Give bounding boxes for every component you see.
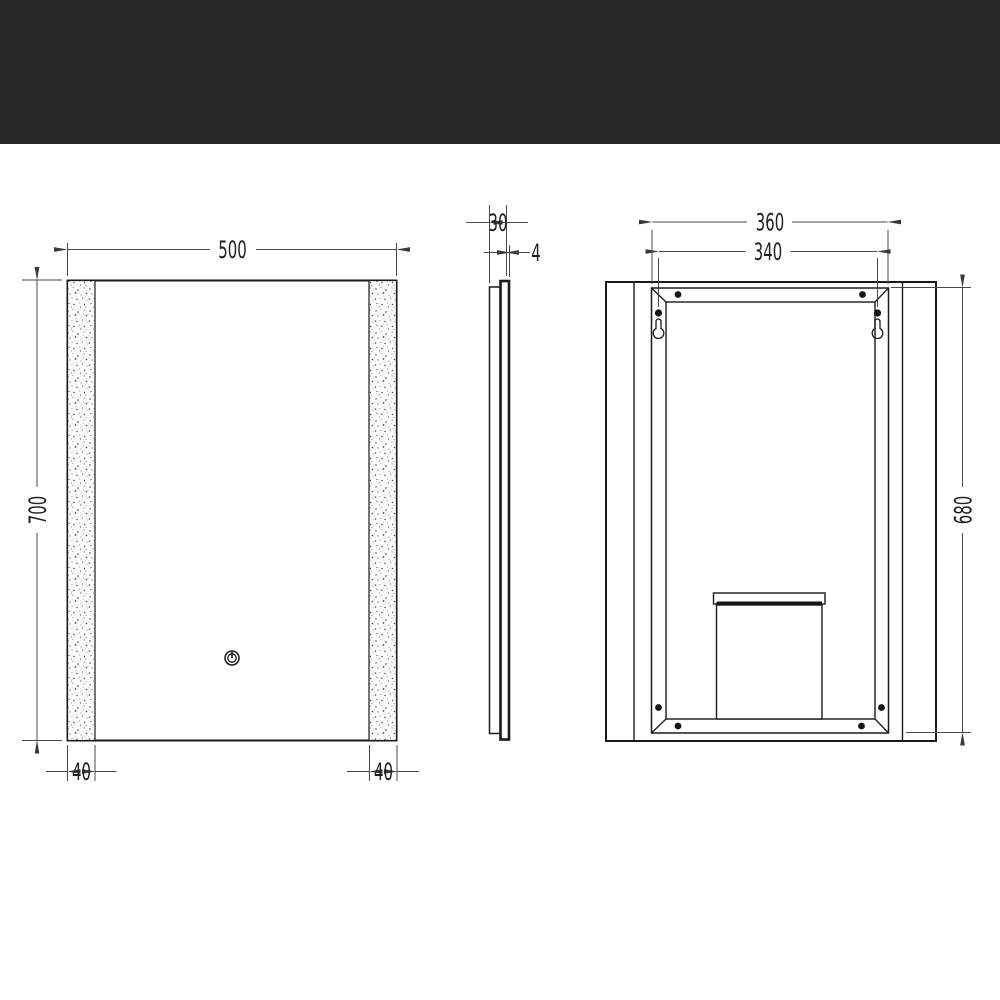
- front-height-dimension: 700: [22, 280, 62, 741]
- side-view: 30 4: [466, 205, 541, 740]
- back-frame-width-dim-label: 360: [756, 208, 784, 237]
- side-frame-profile: [490, 287, 501, 734]
- screw-dot: [878, 704, 885, 711]
- front-width-dim-label: 500: [218, 235, 246, 264]
- front-left-strip-dim-label: 40: [72, 757, 91, 786]
- front-right-strip-dim-label: 40: [374, 757, 393, 786]
- side-thickness-dim-label: 4: [531, 238, 540, 267]
- screw-dot: [858, 723, 865, 730]
- side-glass-profile: [501, 281, 510, 740]
- front-height-dim-label: 700: [23, 496, 52, 524]
- screw-dot: [675, 723, 682, 730]
- header-band: [0, 0, 1000, 144]
- led-strip-right: [369, 281, 397, 741]
- back-frame-height-dim-label: 680: [948, 496, 977, 524]
- side-depth-dimension: 30: [466, 205, 528, 283]
- screw-dot: [655, 704, 662, 711]
- front-view: 500 700 40 40: [22, 235, 419, 786]
- front-left-strip-dimension: 40: [46, 745, 117, 786]
- led-strip-left: [68, 281, 96, 741]
- front-right-strip-dimension: 40: [347, 745, 419, 786]
- front-mirror-outline: [68, 281, 397, 741]
- front-width-dimension: 500: [68, 235, 397, 276]
- side-thickness-dimension: 4: [484, 238, 541, 277]
- technical-drawing-page: 500 700 40 40: [0, 0, 1000, 1000]
- mirror-dimension-drawing: 500 700 40 40: [0, 0, 1000, 1000]
- driver-box: [714, 593, 826, 719]
- back-hanger-spacing-dim-label: 340: [754, 237, 782, 266]
- side-depth-dim-label: 30: [489, 208, 508, 237]
- back-view: 360 340 680: [606, 208, 977, 741]
- screw-dot: [675, 291, 682, 298]
- screw-dot: [859, 291, 866, 298]
